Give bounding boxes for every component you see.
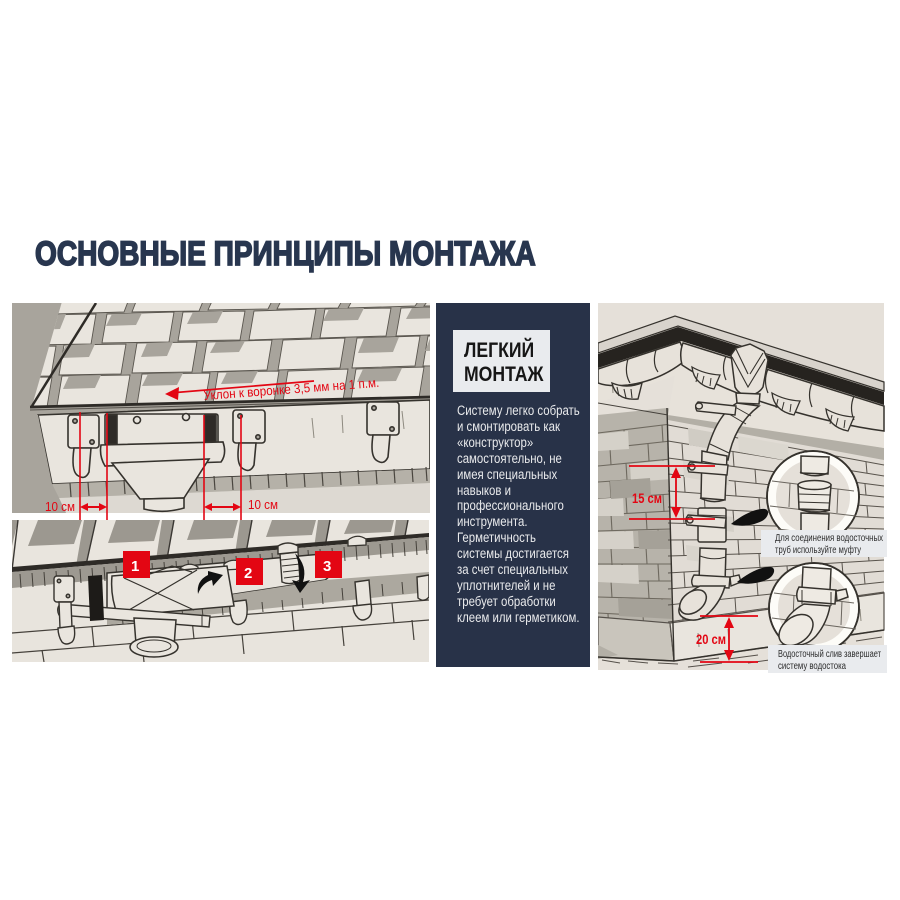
svg-text:Водосточный слив завершает: Водосточный слив завершает [778,649,881,660]
svg-text:3: 3 [323,558,331,575]
svg-text:10 см: 10 см [45,499,75,513]
svg-text:Для соединения водосточных: Для соединения водосточных [775,533,883,544]
svg-text:2: 2 [244,565,252,582]
svg-text:систему водостока: систему водостока [778,661,846,672]
svg-text:10 см: 10 см [248,497,278,512]
svg-text:1: 1 [131,558,139,575]
svg-text:20 см: 20 см [696,632,726,647]
svg-text:15 см: 15 см [632,491,662,506]
svg-text:труб используйте муфту: труб используйте муфту [775,544,861,556]
